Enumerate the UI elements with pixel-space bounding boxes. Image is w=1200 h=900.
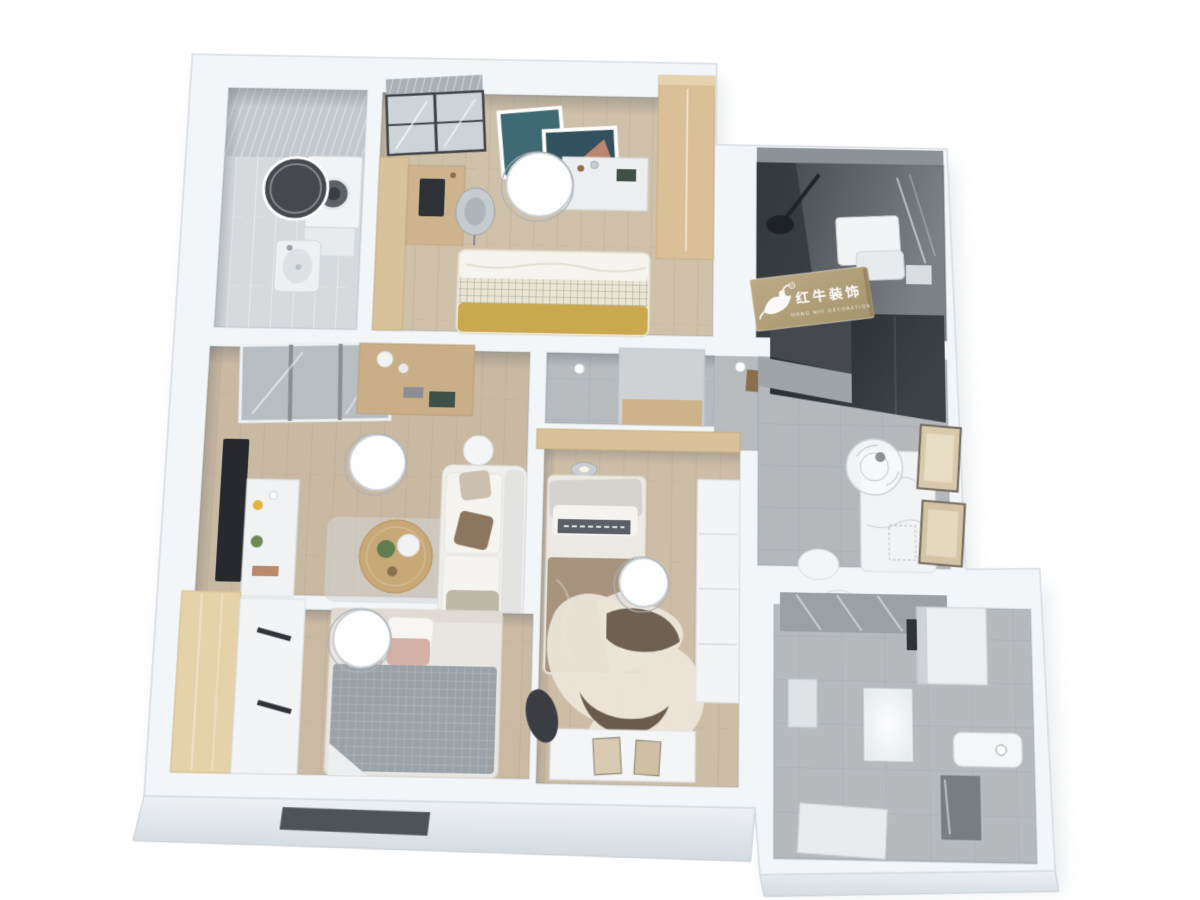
ceiling-lamp	[614, 556, 670, 612]
floorplan-stage: R 红牛装饰 HONG NIU DECORATION	[0, 0, 1200, 900]
desk-with-prints	[550, 729, 696, 783]
center-bedroom	[518, 429, 740, 788]
builtin-wood-desk	[357, 343, 475, 416]
wood-wardrobe	[656, 75, 714, 259]
window-with-blinds	[386, 75, 485, 155]
mirror-cabinet	[940, 774, 983, 841]
round-basin	[262, 157, 330, 220]
wash-basin	[953, 732, 1022, 767]
mustard-blanket	[457, 303, 647, 335]
floorplan-3d-render: R 红牛装饰 HONG NIU DECORATION	[0, 13, 1200, 900]
second-bathroom	[774, 592, 1038, 864]
white-wardrobe	[696, 480, 740, 703]
mop-sink	[274, 240, 322, 292]
downlight	[735, 362, 745, 372]
sideboard	[561, 157, 648, 211]
pink-pillow	[386, 638, 430, 666]
side-table	[463, 435, 494, 465]
media-sideboard	[241, 479, 300, 597]
low-cabinet	[797, 803, 887, 859]
desk-mat	[418, 178, 445, 216]
wardrobe-panel	[171, 591, 241, 773]
downlight	[574, 364, 584, 374]
apartment-render-svg: R 红牛装饰 HONG NIU DECORATION	[0, 13, 1200, 900]
wood-lintel	[537, 429, 741, 453]
skylight-glow	[864, 689, 912, 761]
single-bed	[455, 249, 650, 337]
white-dresser	[231, 598, 306, 774]
ceiling-spotlight	[571, 462, 597, 476]
dining-chair	[798, 549, 839, 580]
pendant-lamp	[846, 439, 903, 496]
shower-cabinet	[906, 607, 987, 685]
wall-niche	[788, 679, 817, 728]
entry-nook	[618, 348, 705, 426]
laundry-balcony	[214, 88, 367, 330]
